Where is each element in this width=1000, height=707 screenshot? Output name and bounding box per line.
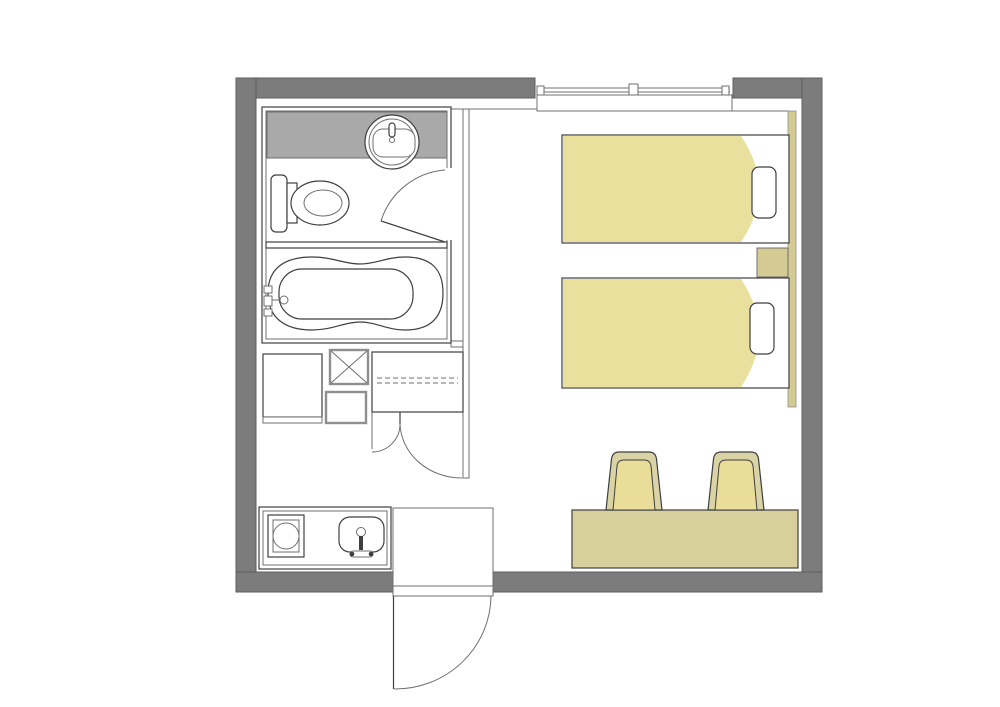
bathroom-partition [266, 242, 447, 248]
twin-bed-1 [562, 135, 789, 243]
vanity-counter [267, 112, 447, 158]
entry-threshold [393, 586, 493, 596]
washbasin [365, 115, 419, 169]
window-mullion [629, 84, 638, 95]
window-jamb-left [537, 86, 544, 95]
wall-left [236, 78, 256, 592]
partition-connector [451, 341, 463, 347]
bath-faucet-spout [280, 296, 288, 304]
wall-bottom-left [236, 572, 393, 592]
utility-row [263, 350, 463, 478]
wall-bottom-right [493, 572, 822, 592]
stove [268, 515, 304, 557]
pipe-shaft [330, 350, 368, 384]
basin-faucet [389, 123, 395, 137]
nightstand [757, 248, 788, 277]
floor-plan-svg [0, 0, 1000, 707]
bed-2-spread [563, 279, 759, 387]
bath-faucet-handle-bottom [264, 309, 272, 316]
storage-cabinet [326, 392, 366, 423]
bed-1-spread [563, 136, 759, 242]
wall-top-left [236, 78, 535, 98]
bath-faucet-handle-top [264, 286, 272, 293]
entry [393, 508, 493, 689]
bathtub [264, 257, 443, 330]
twin-bed-2 [562, 278, 789, 388]
closet [372, 352, 463, 478]
toilet-tank [271, 175, 287, 232]
refrigerator-body [263, 354, 322, 417]
wall-right [802, 78, 822, 592]
kitchenette [259, 507, 391, 569]
closet-box [372, 352, 463, 412]
kitchen-sink [339, 517, 384, 557]
partition-wall-vertical [463, 109, 469, 478]
sink-faucet-knob-left [350, 552, 355, 557]
closet-door-small-arc [372, 424, 400, 452]
chair-1 [606, 452, 662, 510]
sink-drain [357, 528, 366, 537]
sink-faucet-knob-right [369, 552, 374, 557]
entry-vestibule [393, 508, 493, 586]
refrigerator-base [263, 417, 322, 423]
entry-door-swing-arc [394, 596, 491, 689]
chair-2-seat [715, 460, 757, 510]
basin-faucet-spout [390, 138, 395, 143]
bed-2-pillow [750, 303, 774, 354]
bathroom-door-opening [443, 168, 453, 240]
bed-1-pillow [752, 167, 776, 218]
chair-2 [708, 452, 764, 510]
bath-faucet-body [264, 296, 272, 306]
refrigerator [263, 354, 322, 423]
desk [572, 510, 798, 568]
sink-faucet-stem [359, 536, 363, 550]
interior-partitions [451, 109, 469, 478]
window-jamb-right [722, 86, 729, 95]
chair-1-seat [613, 460, 655, 510]
bedroom [562, 111, 798, 568]
closet-door-large-arc [400, 424, 462, 478]
stove-inner [273, 520, 299, 552]
bathroom-unit [262, 107, 453, 343]
floor-plan-page [0, 0, 1000, 707]
toilet-bowl [291, 181, 349, 225]
window-frame [537, 95, 732, 111]
